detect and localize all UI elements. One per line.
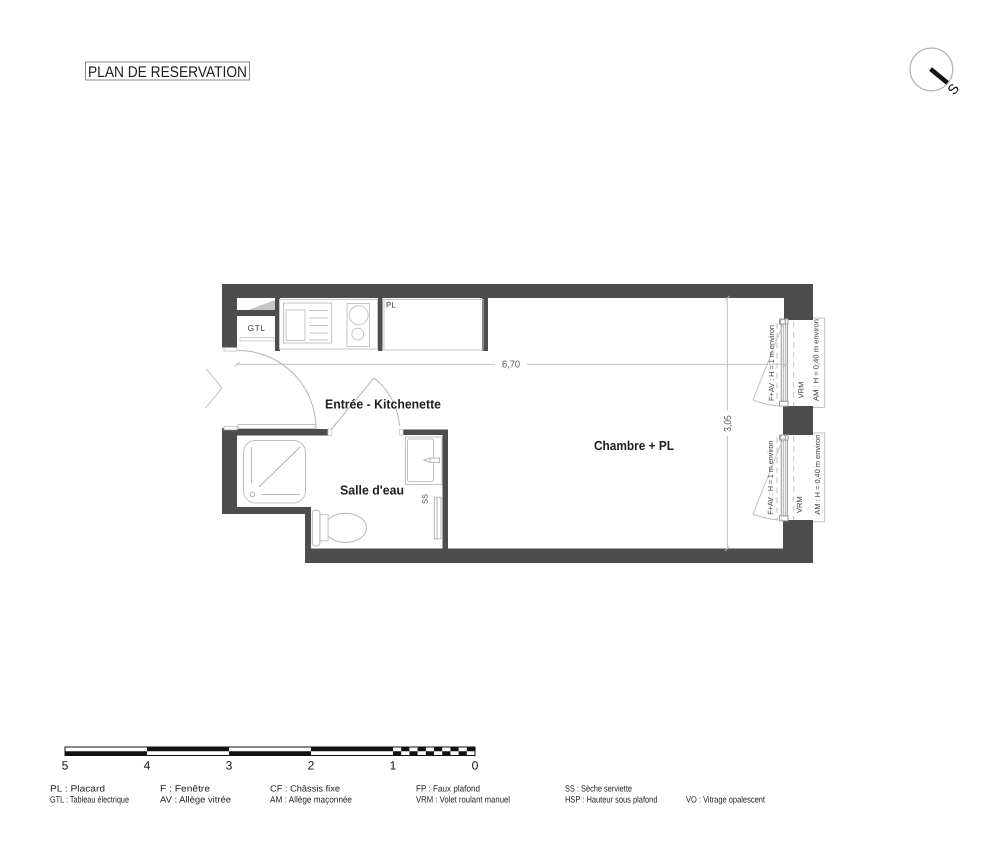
- svg-text:PL: PL: [386, 301, 396, 310]
- svg-text:0: 0: [472, 759, 479, 773]
- svg-text:1: 1: [390, 759, 397, 773]
- svg-text:Entrée - Kitchenette: Entrée - Kitchenette: [325, 396, 441, 411]
- svg-text:FP : Faux plafond: FP : Faux plafond: [416, 784, 480, 794]
- svg-text:AV : Allège vitrée: AV : Allège vitrée: [160, 795, 231, 805]
- svg-text:GTL : Tableau électrique: GTL : Tableau électrique: [50, 795, 129, 805]
- svg-text:AM : Allège maçonnée: AM : Allège maçonnée: [270, 795, 352, 805]
- svg-text:2: 2: [308, 759, 315, 773]
- svg-text:Salle d'eau: Salle d'eau: [340, 483, 404, 498]
- svg-text:F+AV : H ≈ 1 m environ: F+AV : H ≈ 1 m environ: [766, 441, 775, 515]
- svg-text:AM : H = 0,40 m environ: AM : H = 0,40 m environ: [812, 319, 821, 401]
- svg-text:5: 5: [62, 759, 69, 773]
- svg-text:SS: SS: [421, 494, 430, 504]
- svg-text:F+AV : H ≈ 1 m environ: F+AV : H ≈ 1 m environ: [767, 325, 776, 401]
- svg-text:Chambre + PL: Chambre + PL: [594, 438, 674, 453]
- svg-text:4: 4: [144, 759, 151, 773]
- svg-text:HSP : Hauteur sous plafond: HSP : Hauteur sous plafond: [565, 795, 658, 805]
- svg-text:3: 3: [226, 759, 233, 773]
- svg-text:F : Fenêtre: F : Fenêtre: [160, 784, 210, 794]
- svg-text:AM : H = 0,40 m environ: AM : H = 0,40 m environ: [813, 435, 822, 515]
- svg-text:VO : Vitrage opalescent: VO : Vitrage opalescent: [686, 795, 765, 805]
- svg-text:VRM : Volet roulant manuel: VRM : Volet roulant manuel: [416, 795, 510, 805]
- svg-text:SS : Sèche serviette: SS : Sèche serviette: [565, 784, 632, 794]
- svg-text:VRM: VRM: [795, 496, 804, 513]
- svg-text:6,70: 6,70: [502, 360, 520, 371]
- svg-text:CF : Châssis fixe: CF : Châssis fixe: [270, 784, 340, 794]
- svg-text:GTL: GTL: [247, 323, 265, 333]
- svg-text:VRM: VRM: [796, 382, 805, 399]
- svg-text:PLAN DE RESERVATION: PLAN DE RESERVATION: [88, 64, 247, 81]
- svg-text:3,05: 3,05: [723, 415, 734, 432]
- svg-text:PL : Placard: PL : Placard: [50, 784, 105, 794]
